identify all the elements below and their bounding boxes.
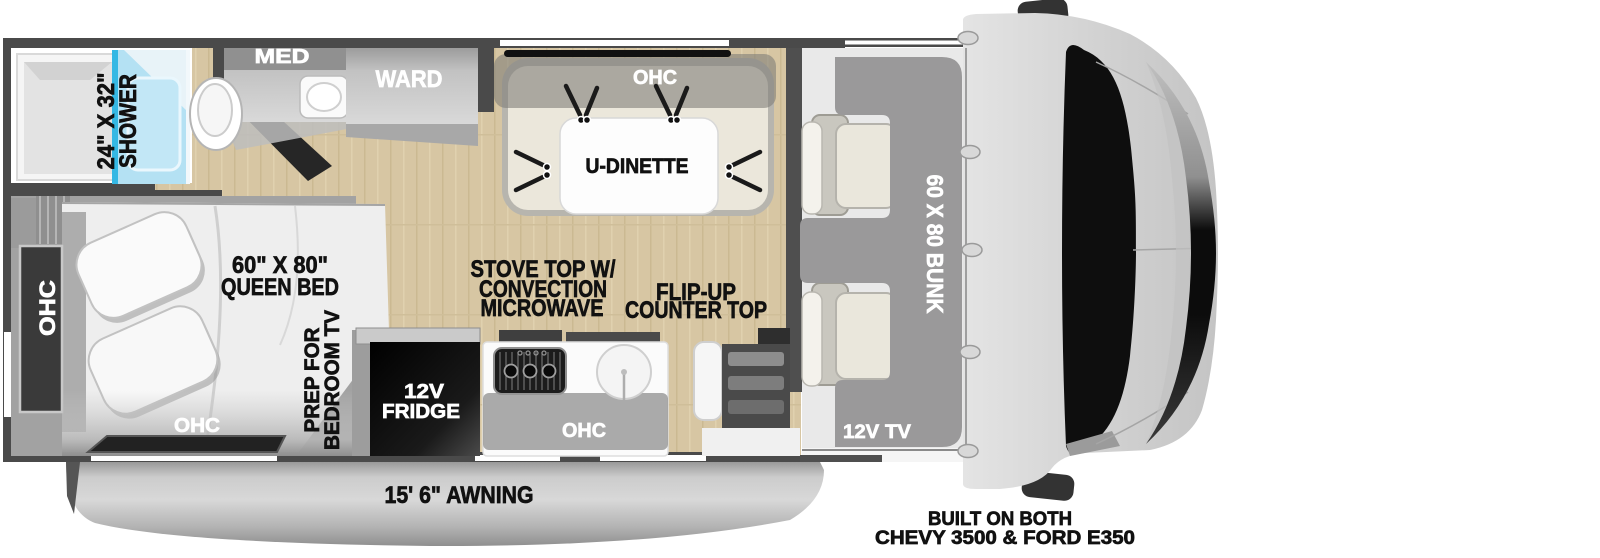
svg-text:15' 6" AWNING: 15' 6" AWNING (385, 482, 534, 509)
svg-text:MED: MED (255, 46, 310, 68)
svg-text:60 X 80 BUNK: 60 X 80 BUNK (922, 175, 948, 314)
svg-text:BEDROOM TV: BEDROOM TV (321, 310, 344, 450)
svg-text:SHOWER: SHOWER (115, 74, 142, 168)
svg-text:WARD: WARD (376, 66, 443, 93)
svg-text:OHC: OHC (633, 67, 677, 89)
svg-text:FRIDGE: FRIDGE (382, 401, 460, 423)
svg-text:CHEVY 3500 & FORD E350: CHEVY 3500 & FORD E350 (875, 528, 1135, 549)
svg-text:OHC: OHC (174, 415, 220, 437)
svg-text:OHC: OHC (35, 280, 60, 336)
svg-text:12V TV: 12V TV (843, 422, 911, 443)
svg-text:12V: 12V (404, 381, 445, 403)
svg-text:U-DINETTE: U-DINETTE (586, 155, 689, 178)
svg-text:BUILT ON BOTH: BUILT ON BOTH (928, 509, 1072, 530)
svg-text:MICROWAVE: MICROWAVE (481, 295, 604, 322)
svg-text:COUNTER TOP: COUNTER TOP (625, 297, 767, 324)
svg-text:OHC: OHC (562, 420, 606, 442)
svg-text:QUEEN BED: QUEEN BED (221, 274, 339, 301)
